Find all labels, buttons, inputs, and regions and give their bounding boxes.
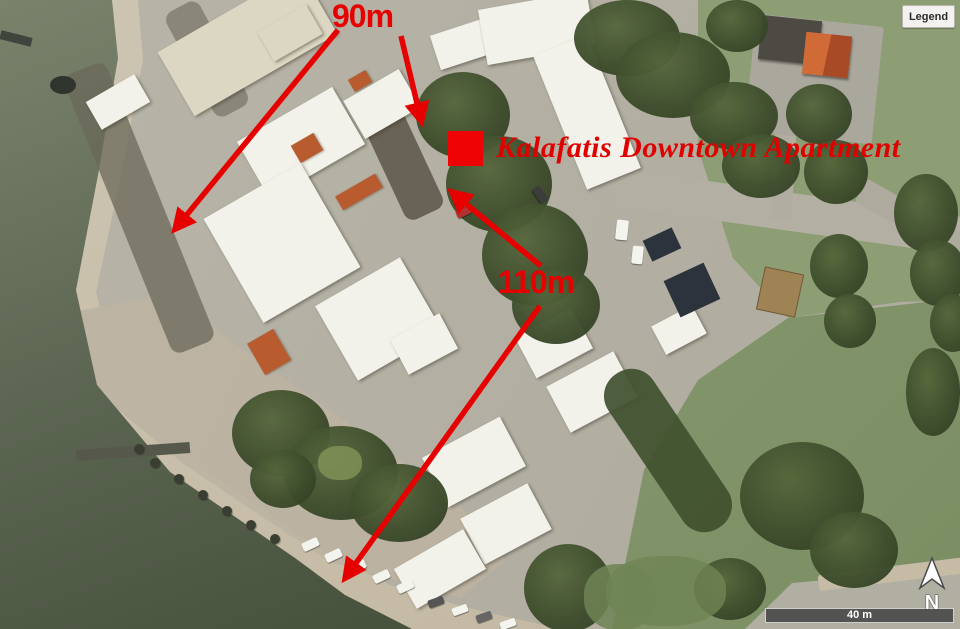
solar-panel	[643, 227, 682, 261]
scale-bar: 40 m	[765, 608, 954, 623]
van	[631, 245, 644, 264]
solar-panel	[664, 263, 721, 318]
orange-roof	[335, 174, 383, 211]
beach-umbrella	[222, 506, 232, 516]
palm-tree	[250, 450, 316, 508]
tree	[810, 512, 898, 588]
bush	[606, 556, 726, 626]
beach-umbrella	[270, 534, 280, 544]
apartment-label: Kalafatis Downtown Apartment	[496, 132, 901, 164]
beach-umbrella	[150, 458, 160, 468]
tree	[810, 234, 868, 298]
satellite-map: Kalafatis Downtown Apartment 90m 110m Le…	[0, 0, 960, 629]
palm-tree	[350, 464, 448, 542]
bush	[318, 446, 362, 480]
beach-umbrella	[246, 520, 256, 530]
rock	[50, 76, 76, 94]
tree	[894, 174, 958, 252]
tree	[824, 294, 876, 348]
van	[615, 219, 629, 240]
beach-umbrella	[198, 490, 208, 500]
distance-label-90m: 90m	[332, 0, 393, 32]
legend-button-label: Legend	[909, 11, 948, 23]
beach-umbrella	[174, 474, 184, 484]
tree	[706, 0, 768, 52]
legend-button[interactable]: Legend	[902, 5, 955, 28]
red-roof-barn	[802, 32, 852, 79]
beach-umbrella	[134, 444, 144, 454]
tree	[906, 348, 960, 436]
scale-bar-label: 40 m	[847, 609, 872, 622]
distance-label-110m: 110m	[498, 266, 574, 298]
apartment-marker	[448, 131, 483, 166]
